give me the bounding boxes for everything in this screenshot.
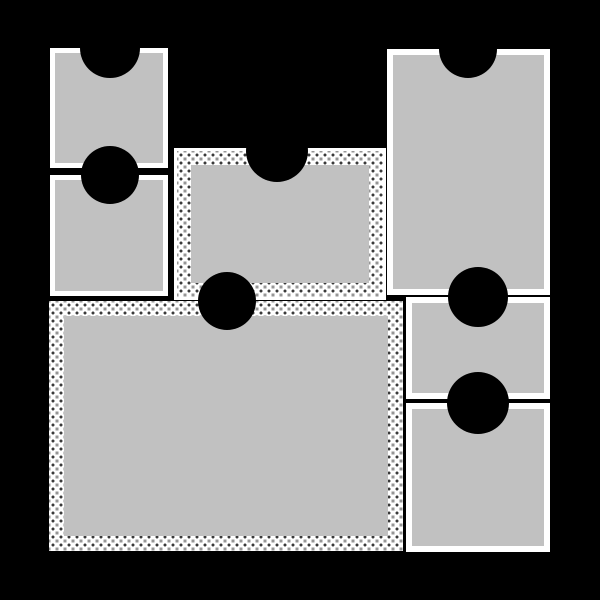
- photo-slot-right-tall[interactable]: [387, 49, 550, 295]
- photo-slot-bottom-large-lace[interactable]: [49, 301, 403, 551]
- thumb-notch-cutout: [448, 267, 508, 327]
- photo-placeholder: [191, 165, 369, 283]
- thumb-notch-cutout: [80, 18, 140, 78]
- thumb-notch-cutout: [246, 120, 308, 182]
- photo-slot-left-small[interactable]: [50, 175, 168, 296]
- thumb-notch-cutout: [439, 20, 497, 78]
- photo-placeholder: [393, 55, 544, 289]
- collage-stage: [0, 0, 600, 600]
- thumb-notch-cutout: [447, 372, 509, 434]
- photo-slot-right-bottom[interactable]: [406, 403, 550, 552]
- photo-slot-center-lace[interactable]: [177, 151, 383, 297]
- photo-placeholder: [64, 316, 388, 536]
- thumb-notch-cutout: [198, 272, 256, 330]
- thumb-notch-cutout: [81, 146, 139, 204]
